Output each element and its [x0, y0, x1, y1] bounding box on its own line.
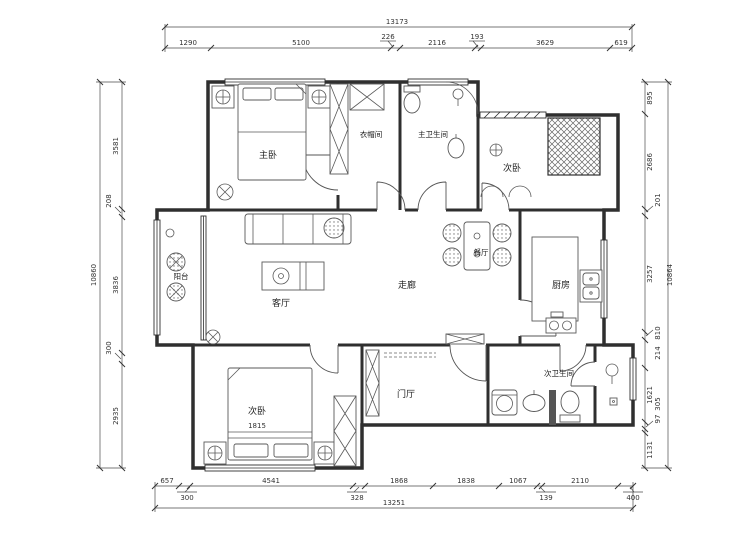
dim-right-8: 97 [654, 415, 662, 424]
bathroom-partition-stub [549, 390, 556, 425]
dim-bottom-4: 1868 [390, 477, 408, 485]
room-label-master-bathroom: 主卫生间 [418, 129, 448, 139]
dim-bottom-6: 1067 [509, 477, 527, 485]
dim-left-2: 3836 [112, 276, 120, 294]
balcony-plants [166, 229, 185, 301]
room-label-dining-room: 餐厅 [474, 248, 489, 257]
room-label-balcony: 阳台 [174, 271, 189, 281]
master-bathroom-fixtures [404, 82, 478, 158]
dim-right-9: 1131 [646, 441, 654, 459]
sill-hatch-window [480, 112, 546, 118]
dim-right-total: 10864 [666, 263, 674, 286]
dim-right-2: 201 [654, 193, 662, 206]
dim-top-2: 226 [381, 33, 395, 41]
dim-bottom-8: 2110 [571, 477, 589, 485]
dim-bottom-total: 13251 [383, 499, 405, 507]
room-label-bedroom-top-right: 次卧 [503, 162, 521, 174]
hatched-closet-block [548, 118, 600, 175]
dim-top-4: 193 [470, 33, 483, 41]
living-room-furniture [206, 214, 351, 344]
room-label-cloakroom: 衣帽间 [360, 129, 383, 139]
floor-plan-drawing: 主卧 衣帽间 主卫生间 次卧 阳台 客厅 走廊 餐厅 厨房 门厅 次卫生间 次卧… [0, 0, 740, 552]
cloakroom-furniture [330, 84, 384, 174]
dim-top-3: 2116 [428, 39, 446, 47]
bed-width-dim: 1815 [248, 422, 266, 430]
dim-left-0: 3581 [112, 137, 120, 155]
dim-bottom-9: 400 [626, 494, 639, 502]
bedroom-bottom-furniture [204, 368, 356, 466]
floor-plan-page: 主卧 衣帽间 主卫生间 次卧 阳台 客厅 走廊 餐厅 厨房 门厅 次卫生间 次卧… [0, 0, 740, 552]
dim-left-1: 208 [105, 194, 113, 207]
dim-left-4: 2935 [112, 407, 120, 425]
room-label-kitchen: 厨房 [552, 279, 570, 291]
dim-top-5: 3629 [536, 39, 554, 47]
dim-right-1: 2686 [646, 153, 654, 171]
dim-bottom-5: 1838 [457, 477, 475, 485]
dim-right-5: 214 [654, 346, 662, 360]
room-label-foyer: 门厅 [397, 388, 415, 400]
room-label-master-bedroom: 主卧 [259, 149, 277, 161]
dim-top-total: 13173 [386, 18, 408, 26]
room-label-bedroom-bottom: 次卧 [248, 405, 266, 417]
master-bedroom-furniture [212, 84, 330, 200]
dim-right-3: 3257 [646, 265, 654, 283]
dim-right-7: 305 [654, 397, 662, 410]
room-label-second-bathroom: 次卫生间 [544, 368, 574, 378]
dim-top-1: 5100 [292, 39, 310, 47]
dim-left-total: 10860 [90, 264, 98, 286]
dim-top-6: 619 [614, 39, 627, 47]
dim-top-0: 1290 [179, 39, 197, 47]
room-label-living-room: 客厅 [272, 297, 290, 309]
dining-furniture [443, 222, 511, 270]
room-label-corridor: 走廊 [398, 279, 416, 291]
dim-bottom-3: 328 [350, 494, 363, 502]
dim-bottom-7: 139 [539, 494, 552, 502]
dim-right-4: 810 [654, 326, 662, 339]
dim-left-3: 300 [105, 341, 113, 354]
dim-right-6: 1621 [646, 386, 654, 404]
dim-bottom-0: 657 [160, 477, 173, 485]
dim-bottom-2: 4541 [262, 477, 280, 485]
dim-right-0: 895 [646, 91, 654, 104]
dim-bottom-1: 300 [180, 494, 193, 502]
